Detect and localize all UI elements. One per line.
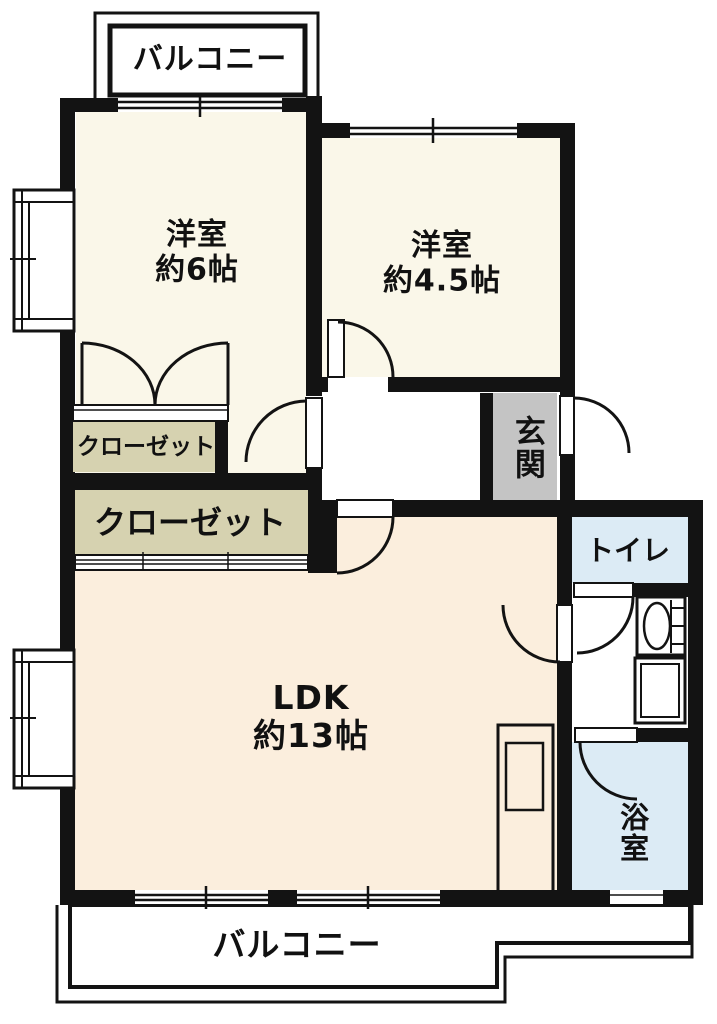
closet-small-label: クローゼット <box>77 434 215 460</box>
washbasin-fixture <box>637 597 685 655</box>
washer-pan-fixture <box>635 658 685 723</box>
floor-plan: バルコニー 洋室約6帖 洋室約4.5帖 クローゼット クローゼット 玄関 トイレ… <box>0 0 717 1024</box>
balcony-top-label: バルコニー <box>133 43 287 78</box>
closet-large-label: クローゼット <box>94 505 286 542</box>
balcony-bottom-label: バルコニー <box>212 926 381 964</box>
bedroom-2-label: 洋室約4.5帖 <box>383 230 501 299</box>
bath-label: 浴室 <box>615 802 648 864</box>
toilet-label: トイレ <box>586 535 670 567</box>
bedroom-1-label: 洋室約6帖 <box>155 219 239 288</box>
ldk-label: LDK約13帖 <box>253 679 369 755</box>
entrance-label: 玄関 <box>508 415 544 481</box>
